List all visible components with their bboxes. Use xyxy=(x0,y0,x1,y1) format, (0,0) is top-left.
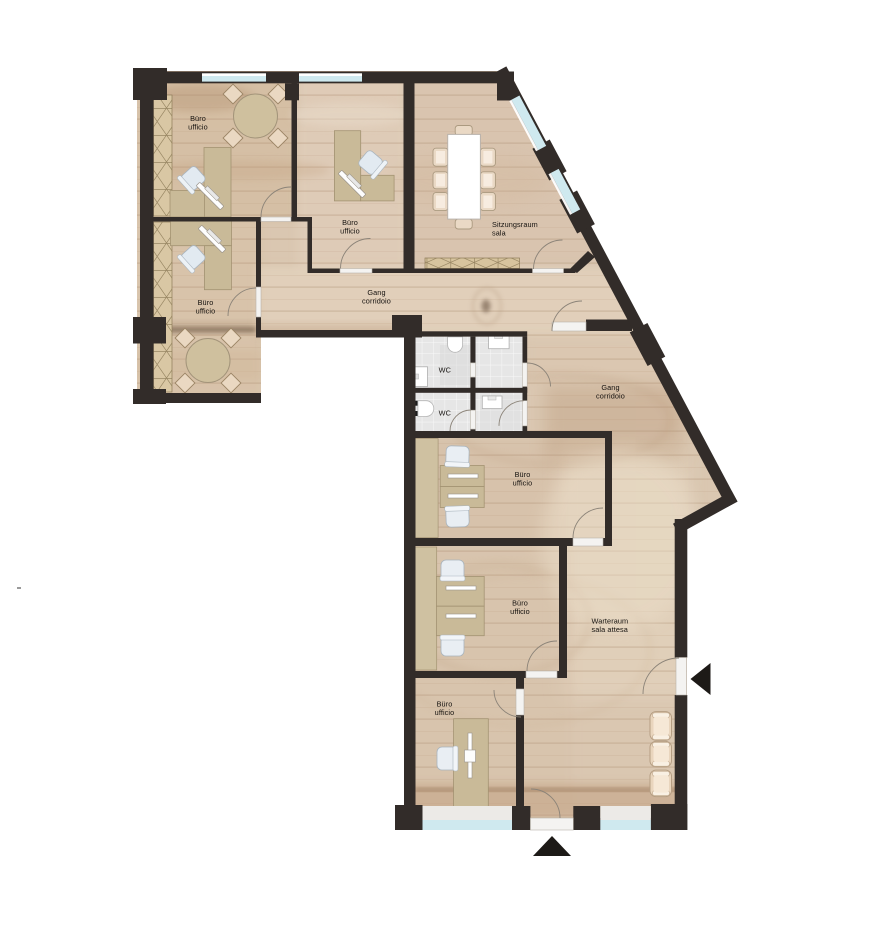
svg-text:ufficio: ufficio xyxy=(340,227,360,236)
svg-text:ufficio: ufficio xyxy=(188,123,208,132)
svg-text:sala attesa: sala attesa xyxy=(592,625,629,634)
svg-text:WC: WC xyxy=(439,366,451,375)
svg-text:ufficio: ufficio xyxy=(196,307,216,316)
svg-text:corridoio: corridoio xyxy=(596,392,625,401)
svg-text:ufficio: ufficio xyxy=(435,708,455,717)
svg-text:sala: sala xyxy=(492,229,507,238)
svg-text:ufficio: ufficio xyxy=(510,607,530,616)
svg-text:ufficio: ufficio xyxy=(513,479,533,488)
svg-text:corridoio: corridoio xyxy=(362,297,391,306)
svg-text:WC: WC xyxy=(439,409,451,418)
